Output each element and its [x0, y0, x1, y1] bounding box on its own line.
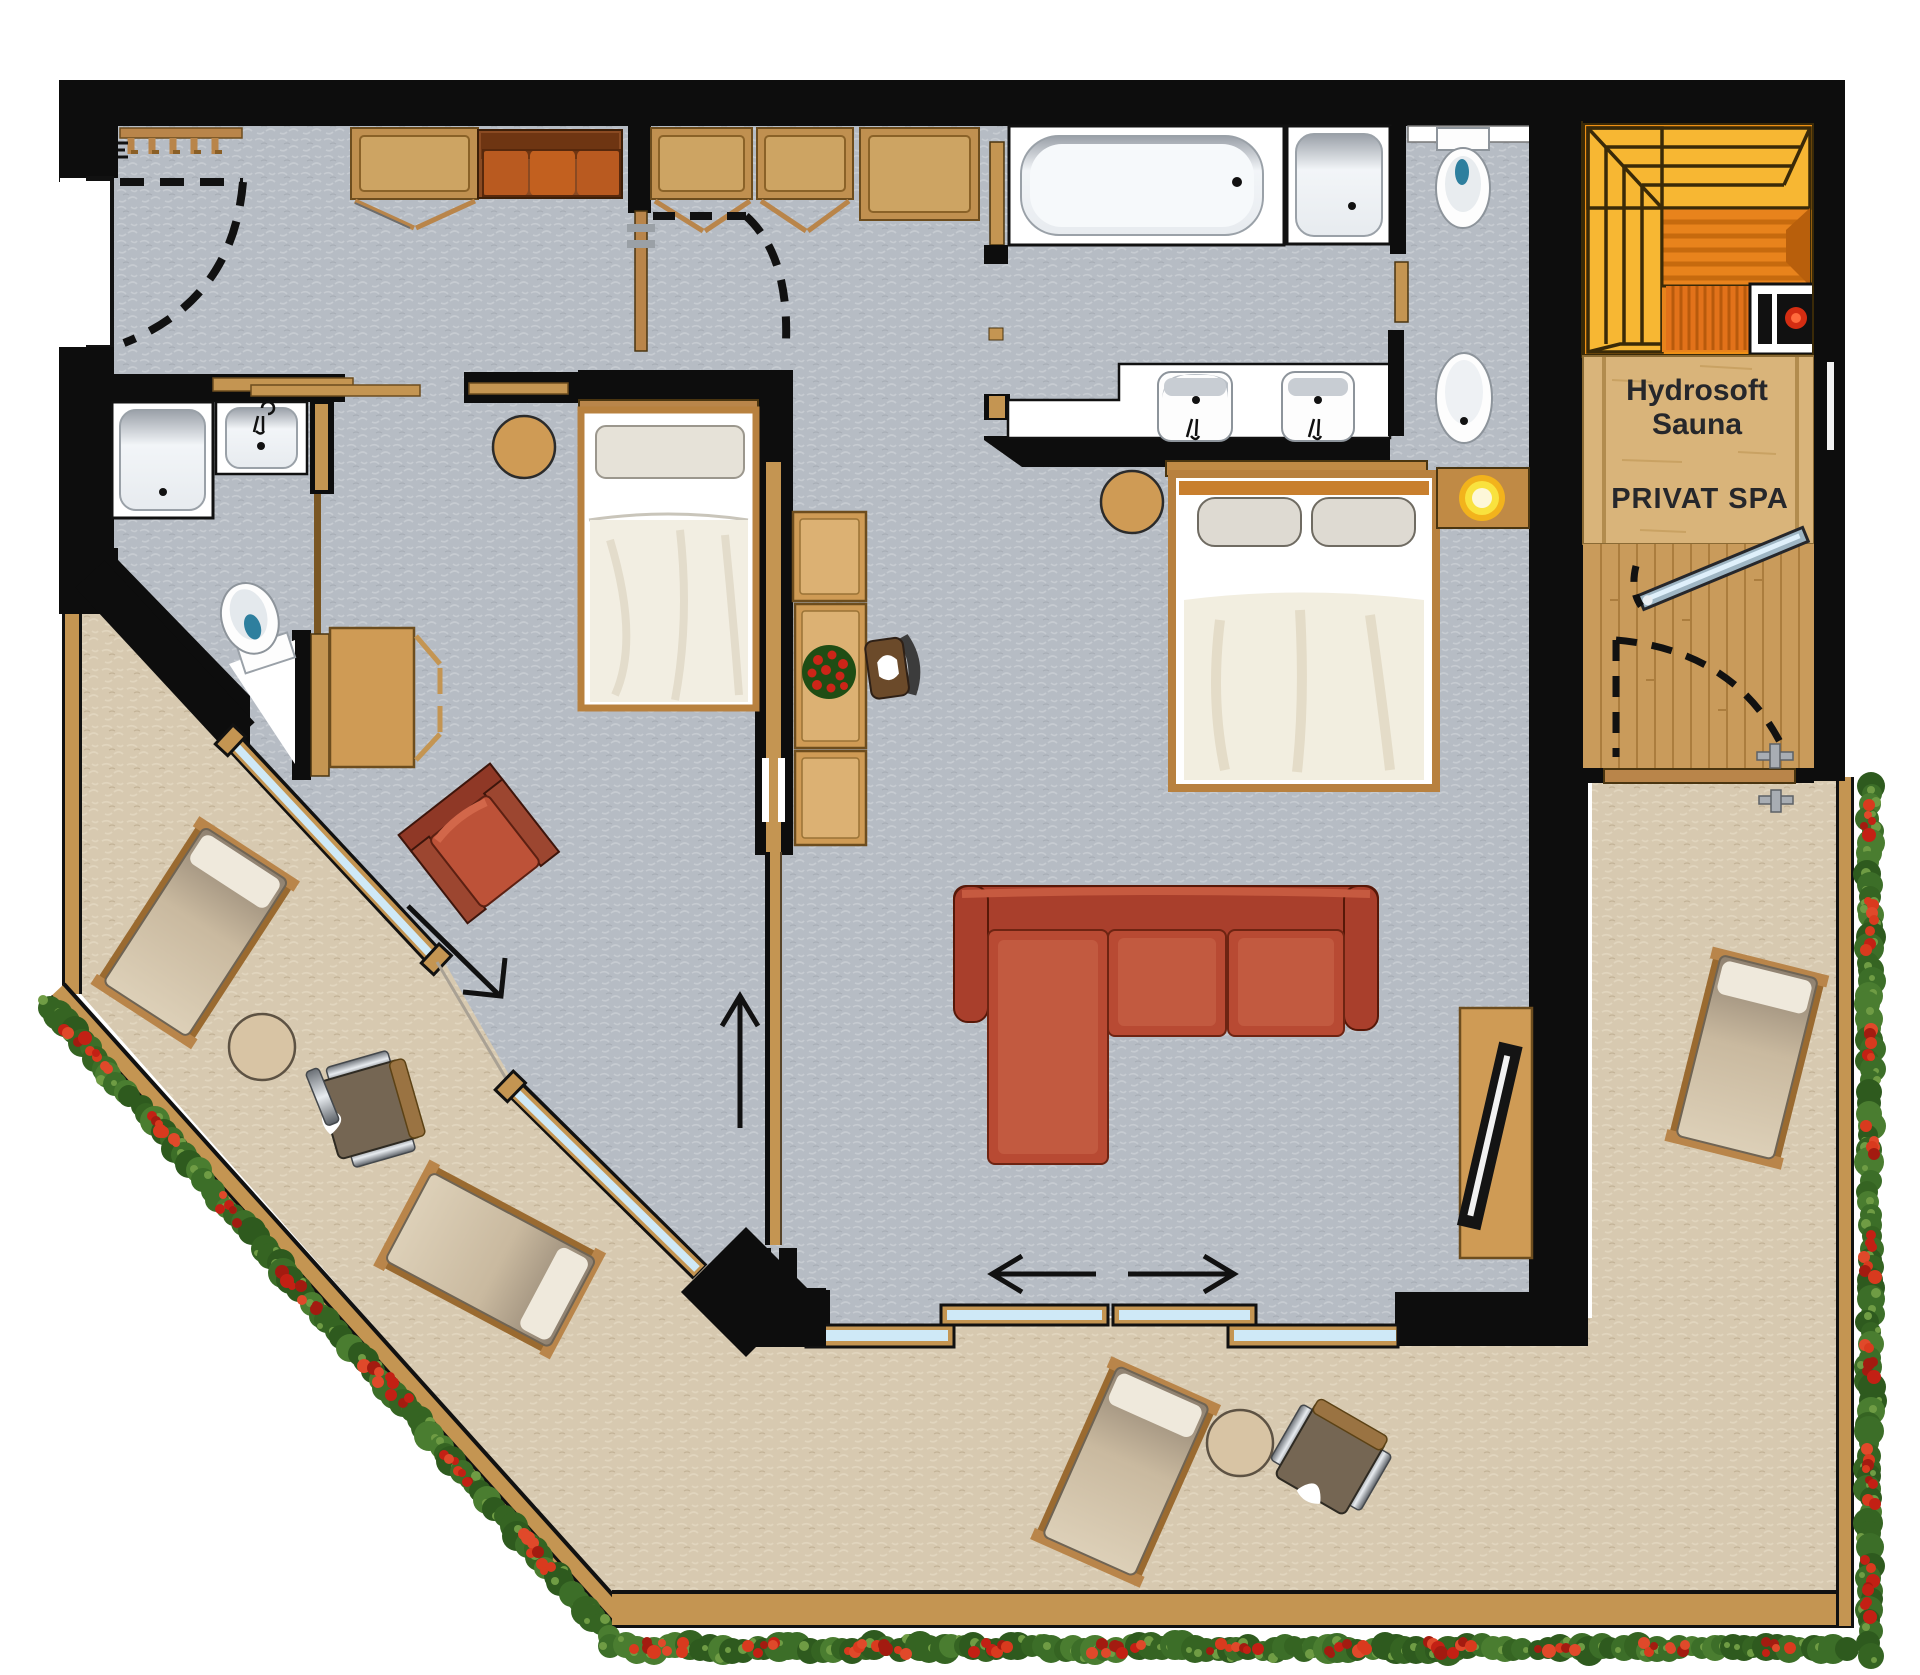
svg-text:Hydrosoft: Hydrosoft	[1626, 374, 1768, 407]
svg-text:PRIVAT SPA: PRIVAT SPA	[1611, 483, 1789, 515]
svg-text:Sauna: Sauna	[1652, 408, 1742, 441]
